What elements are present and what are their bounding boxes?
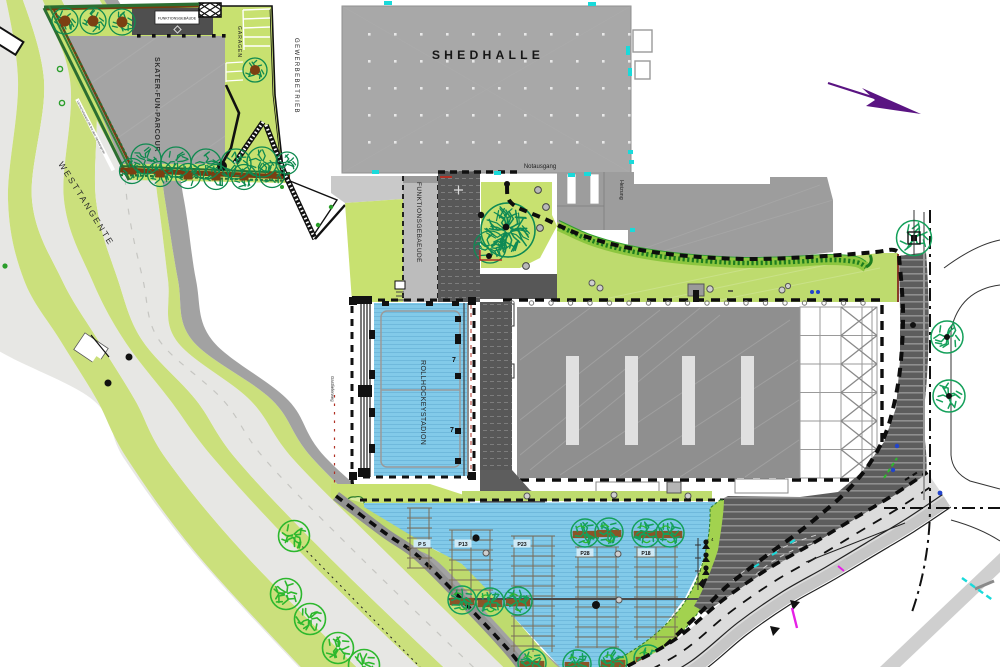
svg-text:GEWERBEBETRIEB: GEWERBEBETRIEB bbox=[293, 38, 299, 114]
svg-text:P13: P13 bbox=[458, 542, 467, 548]
svg-text:Heizung: Heizung bbox=[618, 180, 624, 200]
svg-text:7: 7 bbox=[450, 427, 454, 434]
svg-text:P 5: P 5 bbox=[418, 542, 426, 548]
svg-text:SKATER-FUN-PARCOUR: SKATER-FUN-PARCOUR bbox=[153, 57, 162, 152]
svg-text:P28: P28 bbox=[580, 551, 589, 557]
svg-text:FUNKTIONSGEBAEUDE: FUNKTIONSGEBAEUDE bbox=[415, 182, 422, 263]
svg-text:Notausgang: Notausgang bbox=[524, 164, 556, 170]
svg-text:Gastlieferweg: Gastlieferweg bbox=[330, 376, 335, 402]
svg-text:SHEDHALLE: SHEDHALLE bbox=[432, 48, 544, 62]
svg-text:FUNKTIONSGEBÄUDE: FUNKTIONSGEBÄUDE bbox=[158, 17, 197, 21]
svg-text:7: 7 bbox=[452, 357, 456, 364]
svg-text:ROLLHOCKEYSTADION: ROLLHOCKEYSTADION bbox=[419, 360, 426, 445]
svg-text:P23: P23 bbox=[517, 542, 526, 548]
svg-text:P18: P18 bbox=[641, 551, 650, 557]
svg-text:GARAGEN: GARAGEN bbox=[236, 26, 242, 58]
